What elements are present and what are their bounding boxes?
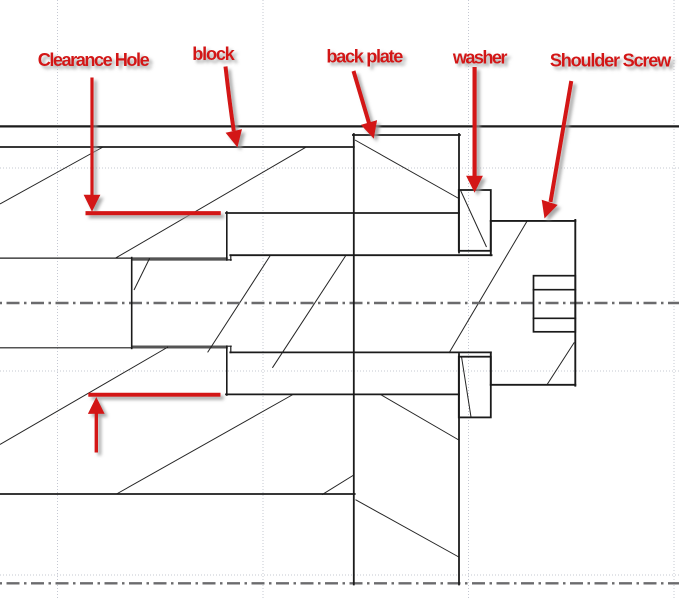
svg-text:back plate: back plate bbox=[326, 47, 403, 67]
svg-text:Clearance Hole: Clearance Hole bbox=[38, 50, 150, 70]
svg-text:block: block bbox=[192, 44, 235, 64]
svg-text:washer: washer bbox=[452, 48, 508, 68]
svg-text:Shoulder Screw: Shoulder Screw bbox=[550, 51, 672, 71]
